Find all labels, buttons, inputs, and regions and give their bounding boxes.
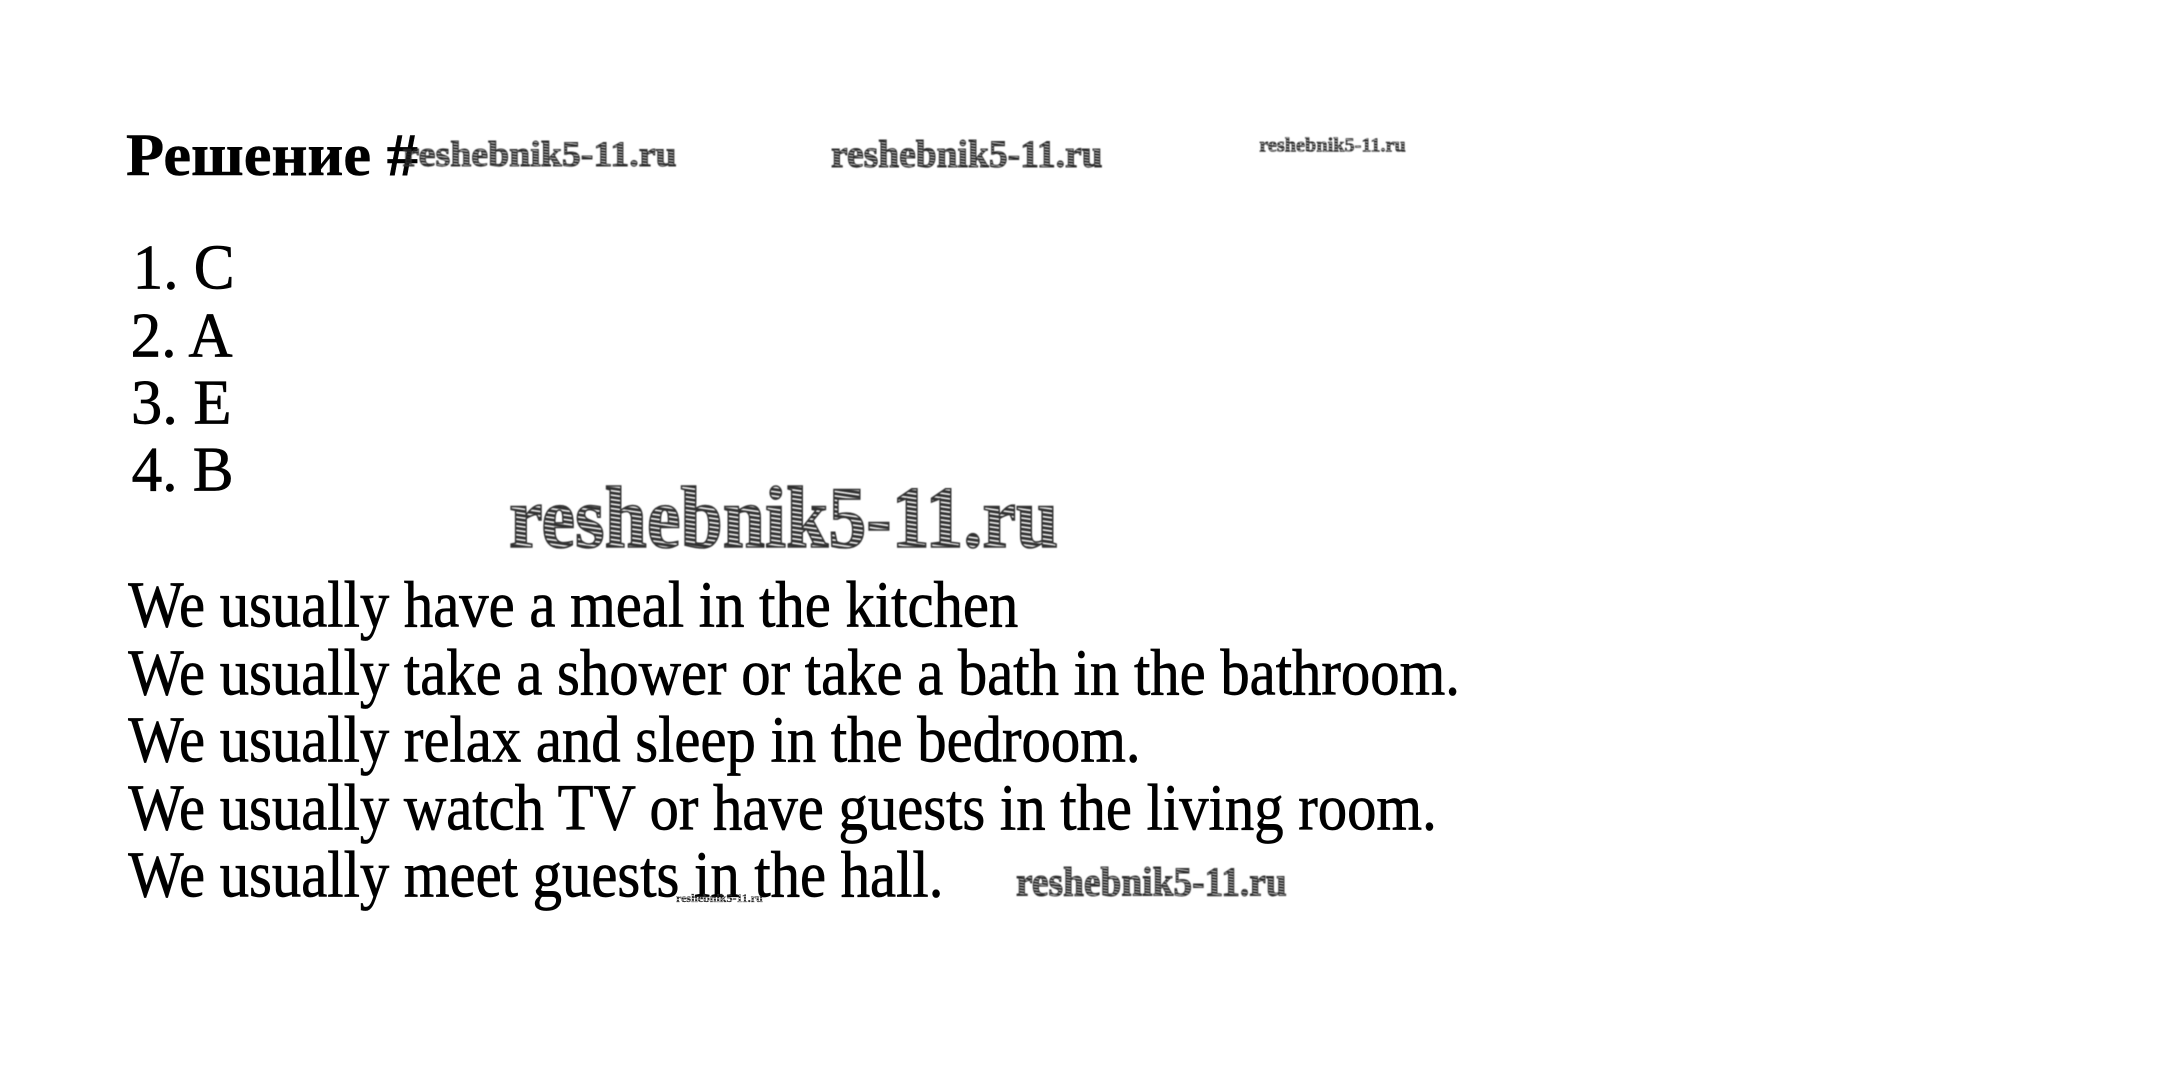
svg-text:reshebnik5-11.ru: reshebnik5-11.ru	[1259, 135, 1405, 157]
svg-text:reshebnik5-11.ru: reshebnik5-11.ru	[1016, 860, 1287, 905]
svg-text:reshebnik5-11.ru: reshebnik5-11.ru	[831, 134, 1103, 177]
svg-text:reshebnik5-11.ru: reshebnik5-11.ru	[403, 134, 677, 174]
svg-text:reshebnik5-11.ru: reshebnik5-11.ru	[676, 891, 763, 905]
svg-text:reshebnik5-11.ru: reshebnik5-11.ru	[509, 469, 1058, 566]
